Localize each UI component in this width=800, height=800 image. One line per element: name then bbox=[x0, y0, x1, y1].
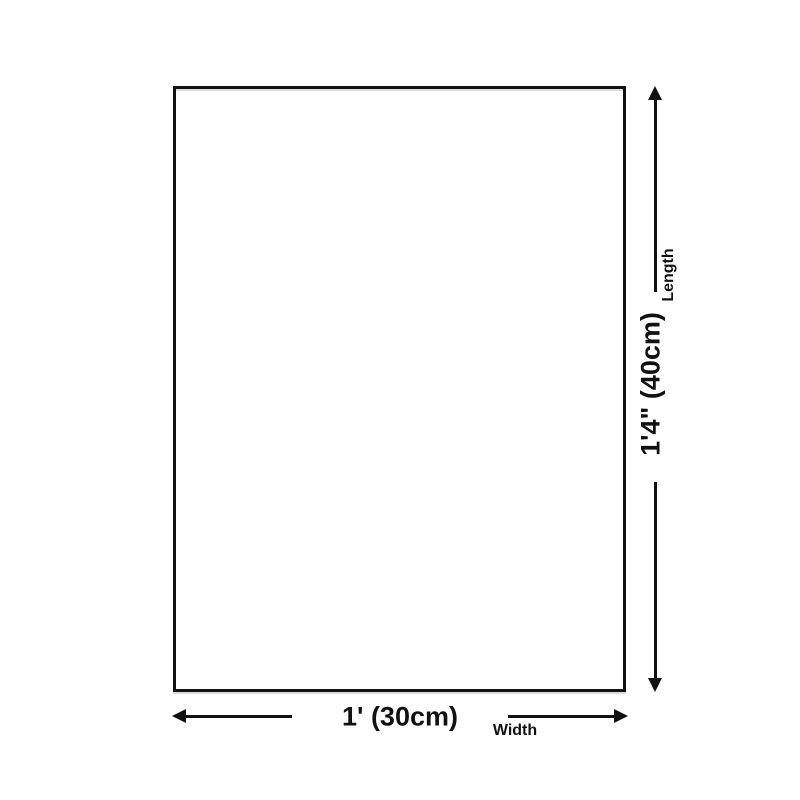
arrow-left-icon bbox=[172, 709, 186, 723]
product-size-diagram: Length 1'4" (40cm) 1' (30cm) Width bbox=[0, 0, 800, 800]
arrow-down-icon bbox=[648, 678, 662, 692]
length-axis-label: Length bbox=[661, 248, 677, 301]
width-value-label: 1' (30cm) bbox=[342, 704, 458, 731]
width-dimension-line-right bbox=[508, 715, 615, 718]
arrow-up-icon bbox=[648, 86, 662, 100]
arrow-right-icon bbox=[614, 709, 628, 723]
width-axis-label: Width bbox=[493, 723, 537, 739]
length-dimension-line-upper bbox=[654, 99, 657, 292]
length-value-label: 1'4" (40cm) bbox=[638, 312, 665, 456]
product-canvas bbox=[173, 86, 626, 692]
length-dimension-line-lower bbox=[654, 482, 657, 679]
width-dimension-line-left bbox=[185, 715, 292, 718]
